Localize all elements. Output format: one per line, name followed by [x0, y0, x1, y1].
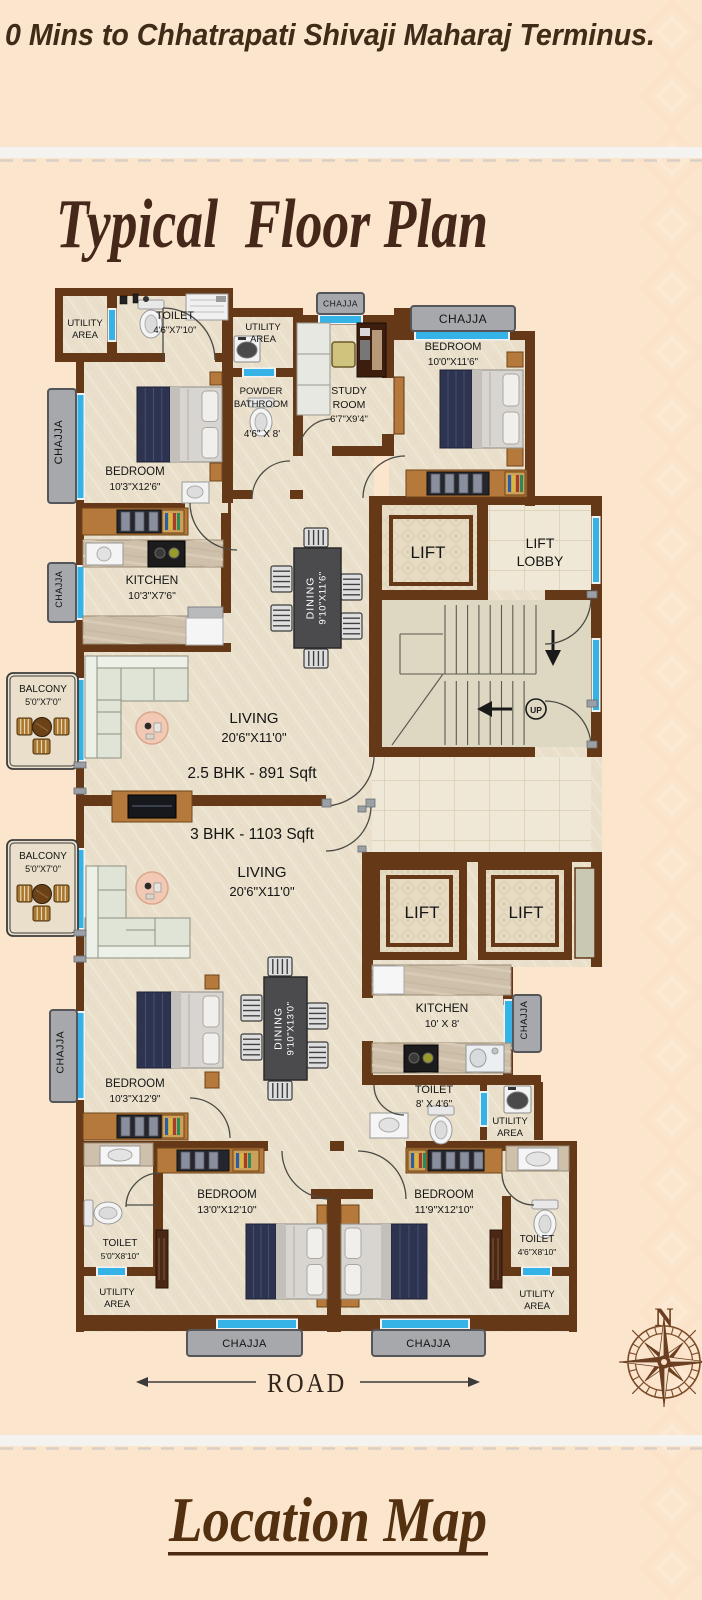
svg-text:DINING: DINING — [273, 1007, 285, 1050]
svg-text:LIVING: LIVING — [237, 864, 286, 881]
svg-text:ROOM: ROOM — [333, 399, 366, 411]
svg-text:LIVING: LIVING — [229, 710, 278, 727]
svg-text:9'10"X13'0": 9'10"X13'0" — [286, 1002, 297, 1056]
svg-text:Location Map: Location Map — [168, 1484, 487, 1555]
svg-text:2.5 BHK - 891 Sqft: 2.5 BHK - 891 Sqft — [187, 765, 317, 782]
svg-text:KITCHEN: KITCHEN — [416, 1001, 469, 1015]
svg-text:13'0"X12'10": 13'0"X12'10" — [197, 1204, 257, 1216]
svg-text:LIFT: LIFT — [526, 535, 555, 551]
svg-text:6'7"X9'4": 6'7"X9'4" — [330, 414, 368, 425]
svg-text:UTILITY: UTILITY — [519, 1289, 555, 1300]
svg-text:10'0"X11'6": 10'0"X11'6" — [428, 357, 479, 368]
svg-text:CHAJJA: CHAJJA — [54, 571, 64, 608]
svg-text:4'6"X8'10": 4'6"X8'10" — [518, 1247, 557, 1257]
svg-text:TOILET: TOILET — [156, 310, 195, 322]
svg-text:BEDROOM: BEDROOM — [105, 1078, 164, 1090]
svg-text:4'6" X 8': 4'6" X 8' — [244, 429, 280, 440]
svg-text:AREA: AREA — [250, 334, 277, 345]
svg-text:AREA: AREA — [524, 1301, 551, 1312]
svg-text:LOBBY: LOBBY — [517, 553, 564, 569]
svg-text:CHAJJA: CHAJJA — [55, 1031, 67, 1074]
svg-text:TOILET: TOILET — [103, 1238, 138, 1249]
svg-text:Typical Floor Plan: Typical Floor Plan — [56, 186, 488, 263]
svg-text:LIFT: LIFT — [405, 903, 440, 922]
svg-text:3 BHK - 1103 Sqft: 3 BHK - 1103 Sqft — [190, 826, 314, 843]
svg-text:UTILITY: UTILITY — [492, 1116, 528, 1127]
svg-text:ROAD: ROAD — [267, 1368, 347, 1398]
svg-text:BEDROOM: BEDROOM — [425, 341, 482, 353]
svg-text:CHAJJA: CHAJJA — [53, 420, 65, 465]
svg-text:BEDROOM: BEDROOM — [197, 1189, 256, 1201]
svg-text:BALCONY: BALCONY — [19, 684, 67, 695]
svg-text:KITCHEN: KITCHEN — [126, 573, 179, 587]
svg-text:BATHROOM: BATHROOM — [234, 399, 288, 410]
svg-text:LIFT: LIFT — [509, 903, 544, 922]
svg-text:TOILET: TOILET — [415, 1084, 454, 1096]
svg-text:TOILET: TOILET — [520, 1234, 555, 1245]
svg-text:5'0"X7'0": 5'0"X7'0" — [25, 864, 61, 874]
svg-text:5'0"X7'0": 5'0"X7'0" — [25, 697, 61, 707]
svg-text:BEDROOM: BEDROOM — [414, 1189, 473, 1201]
svg-text:CHAJJA: CHAJJA — [519, 1000, 530, 1039]
svg-text:CHAJJA: CHAJJA — [222, 1338, 267, 1350]
svg-text:LIFT: LIFT — [411, 543, 446, 562]
svg-text:CHAJJA: CHAJJA — [323, 299, 358, 309]
svg-text:CHAJJA: CHAJJA — [439, 312, 487, 326]
svg-text:0 Mins to Chhatrapati Shivaji: 0 Mins to Chhatrapati Shivaji Maharaj Te… — [5, 17, 655, 52]
svg-text:UTILITY: UTILITY — [245, 322, 281, 333]
svg-text:AREA: AREA — [104, 1299, 131, 1310]
svg-text:10' X 8': 10' X 8' — [425, 1018, 459, 1030]
svg-text:BEDROOM: BEDROOM — [105, 466, 164, 478]
svg-text:N: N — [655, 1303, 674, 1332]
svg-text:9'10"X11'6": 9'10"X11'6" — [318, 571, 329, 624]
svg-text:5'0"X8'10": 5'0"X8'10" — [101, 1251, 140, 1261]
svg-text:STUDY: STUDY — [331, 385, 367, 397]
svg-text:AREA: AREA — [72, 330, 99, 341]
svg-text:10'3"X12'9": 10'3"X12'9" — [110, 1094, 161, 1105]
svg-text:10'3"X12'6": 10'3"X12'6" — [110, 482, 161, 493]
svg-text:AREA: AREA — [497, 1128, 524, 1139]
svg-text:BALCONY: BALCONY — [19, 851, 67, 862]
svg-text:POWDER: POWDER — [240, 386, 283, 397]
svg-text:20'6"X11'0": 20'6"X11'0" — [221, 730, 287, 745]
svg-text:4'6"X7'10": 4'6"X7'10" — [153, 325, 196, 336]
svg-text:DINING: DINING — [305, 577, 317, 620]
svg-text:UTILITY: UTILITY — [99, 1287, 135, 1298]
svg-text:11'9"X12'10": 11'9"X12'10" — [415, 1204, 474, 1216]
svg-text:UP: UP — [530, 705, 542, 715]
svg-text:10'3"X7'6": 10'3"X7'6" — [128, 590, 176, 602]
svg-text:UTILITY: UTILITY — [67, 318, 103, 329]
svg-text:8' X 4'6": 8' X 4'6" — [416, 1099, 453, 1110]
svg-text:CHAJJA: CHAJJA — [406, 1338, 451, 1350]
svg-text:20'6"X11'0": 20'6"X11'0" — [229, 884, 295, 899]
